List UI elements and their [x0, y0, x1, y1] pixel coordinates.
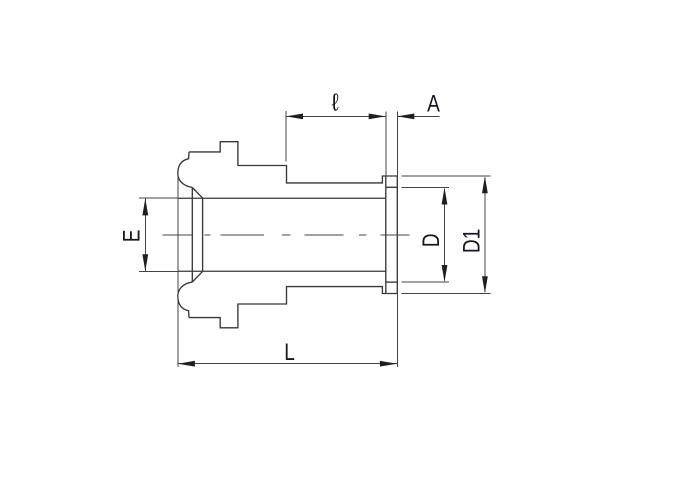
svg-text:D: D — [417, 233, 445, 247]
svg-text:D1: D1 — [457, 229, 485, 253]
svg-text:A: A — [427, 89, 440, 117]
svg-text:L: L — [284, 338, 295, 366]
svg-text:E: E — [117, 230, 145, 243]
svg-text:ℓ: ℓ — [331, 89, 339, 116]
